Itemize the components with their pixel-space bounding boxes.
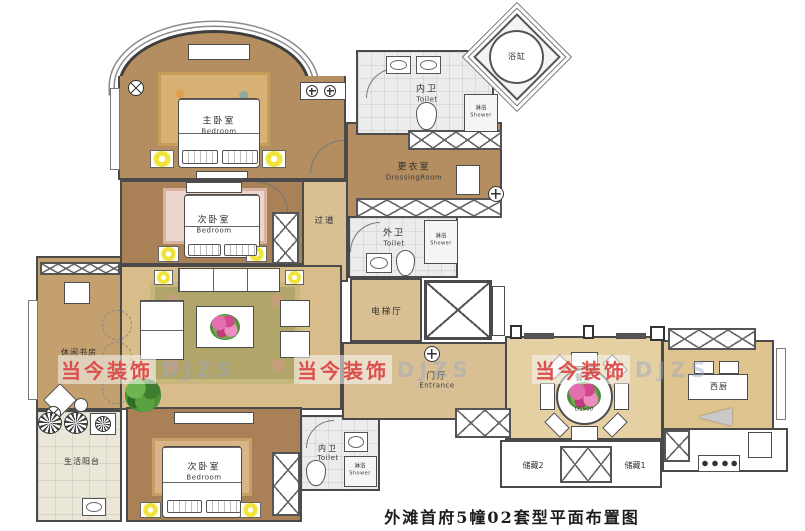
pillow: [167, 500, 202, 513]
label-corridor: 过道: [314, 216, 335, 226]
tv-cabinet: [188, 44, 250, 60]
ceiling-fan-icon: [128, 80, 144, 96]
sink: [386, 56, 411, 74]
armchair: [280, 300, 310, 327]
label-kitchen: 西厨: [710, 382, 728, 392]
sink-icon: [306, 85, 318, 97]
label-dressing: 更衣室DressingRoom: [386, 162, 442, 181]
balcony-sink: [82, 498, 106, 516]
sideboard: [616, 333, 646, 339]
tv-cabinet: [186, 182, 242, 193]
planter-icon: [64, 412, 88, 434]
window: [776, 348, 786, 420]
study-window-sill: [40, 262, 120, 275]
pillow: [206, 500, 241, 513]
column: [650, 326, 665, 341]
elevator-shaft: [424, 280, 492, 340]
watermark: 当今装饰 DJZS: [58, 355, 237, 384]
side-table-lamp: [285, 270, 304, 285]
label-bathtub: 浴缸: [508, 52, 526, 62]
study-chair: [64, 282, 90, 304]
sofa-loveseat: [140, 300, 184, 360]
label-shower-bottom: 淋浴Shower: [349, 464, 371, 477]
compass-icon: [488, 186, 504, 202]
caption-title: 外滩首府5幢02套型平面布置图: [332, 504, 692, 528]
label-storage-1: 储藏1: [624, 461, 645, 471]
elevator-door: [492, 286, 505, 336]
nightstand-lamp: [140, 502, 161, 518]
label-bedroom-3: 次卧室Bedroom: [186, 462, 221, 481]
window: [28, 300, 38, 400]
dining-chair: [540, 383, 555, 410]
label-shower-top: 淋浴Shower: [470, 106, 492, 119]
folding-door-symbol: [102, 310, 132, 340]
vent-cone-icon: [698, 408, 732, 426]
label-toilet-bottom: 内卫Toilet: [317, 444, 338, 462]
sideboard: [524, 333, 554, 339]
label-toilet-top: 内卫Toilet: [416, 84, 438, 103]
nightstand-lamp: [158, 246, 179, 262]
entrance-cabinet: [455, 408, 511, 438]
tv-cabinet: [174, 412, 254, 424]
watermark: 当今装饰 DJZS: [294, 355, 473, 384]
wardrobe-bedroom-3: [272, 452, 300, 516]
pillow: [182, 150, 218, 164]
storage-cabinet: [560, 446, 612, 483]
washer-drum-icon: [95, 416, 111, 432]
watermark: 当今装饰 DJZS: [532, 355, 711, 384]
label-balcony: 生活阳台: [64, 457, 100, 467]
dining-chair: [614, 383, 629, 410]
dressing-cabinet-bottom: [356, 198, 502, 218]
nightstand-lamp: [262, 150, 286, 168]
label-master-bedroom: 主卧室Bedroom: [201, 116, 236, 135]
label-toilet-mid: 外卫Toilet: [383, 228, 405, 247]
dressing-cabinet-top: [408, 130, 502, 150]
sink: [366, 253, 392, 273]
sink-icon: [324, 85, 336, 97]
stove: [698, 455, 740, 472]
pillow: [222, 150, 258, 164]
label-bedroom-2: 次卧室Bedroom: [196, 215, 231, 234]
stool: [74, 398, 88, 412]
nightstand-lamp: [150, 150, 174, 168]
kitchen-cabinet-left: [664, 430, 690, 462]
planter-icon: [38, 412, 62, 434]
dining-chair: [571, 426, 598, 441]
sink: [344, 432, 368, 452]
armchair: [280, 331, 310, 358]
kitchen-chair: [719, 361, 739, 374]
fridge: [748, 432, 772, 458]
nightstand-lamp: [240, 502, 261, 518]
pillow: [188, 244, 221, 256]
bed-bench: [196, 171, 248, 179]
floor-plan-canvas: 主卧室Bedroom 次卧室Bedroom 过道 更衣室DressingRoom…: [0, 0, 805, 531]
flower-bouquet: [210, 314, 240, 340]
dressing-chair: [456, 165, 480, 195]
window: [110, 88, 120, 170]
label-dining-diameter: D1500: [575, 407, 593, 414]
kitchen-cabinet-top: [668, 328, 756, 350]
sink: [416, 56, 441, 74]
label-shower-mid: 淋浴Shower: [430, 234, 452, 247]
label-elevator-hall: 电梯厅: [371, 307, 403, 317]
column: [583, 325, 594, 339]
side-table-lamp: [154, 270, 173, 285]
pillow: [224, 244, 257, 256]
label-storage-2: 储藏2: [522, 461, 543, 471]
column: [510, 325, 522, 339]
wardrobe-bedroom-2: [272, 212, 299, 264]
sofa-main: [178, 268, 280, 292]
